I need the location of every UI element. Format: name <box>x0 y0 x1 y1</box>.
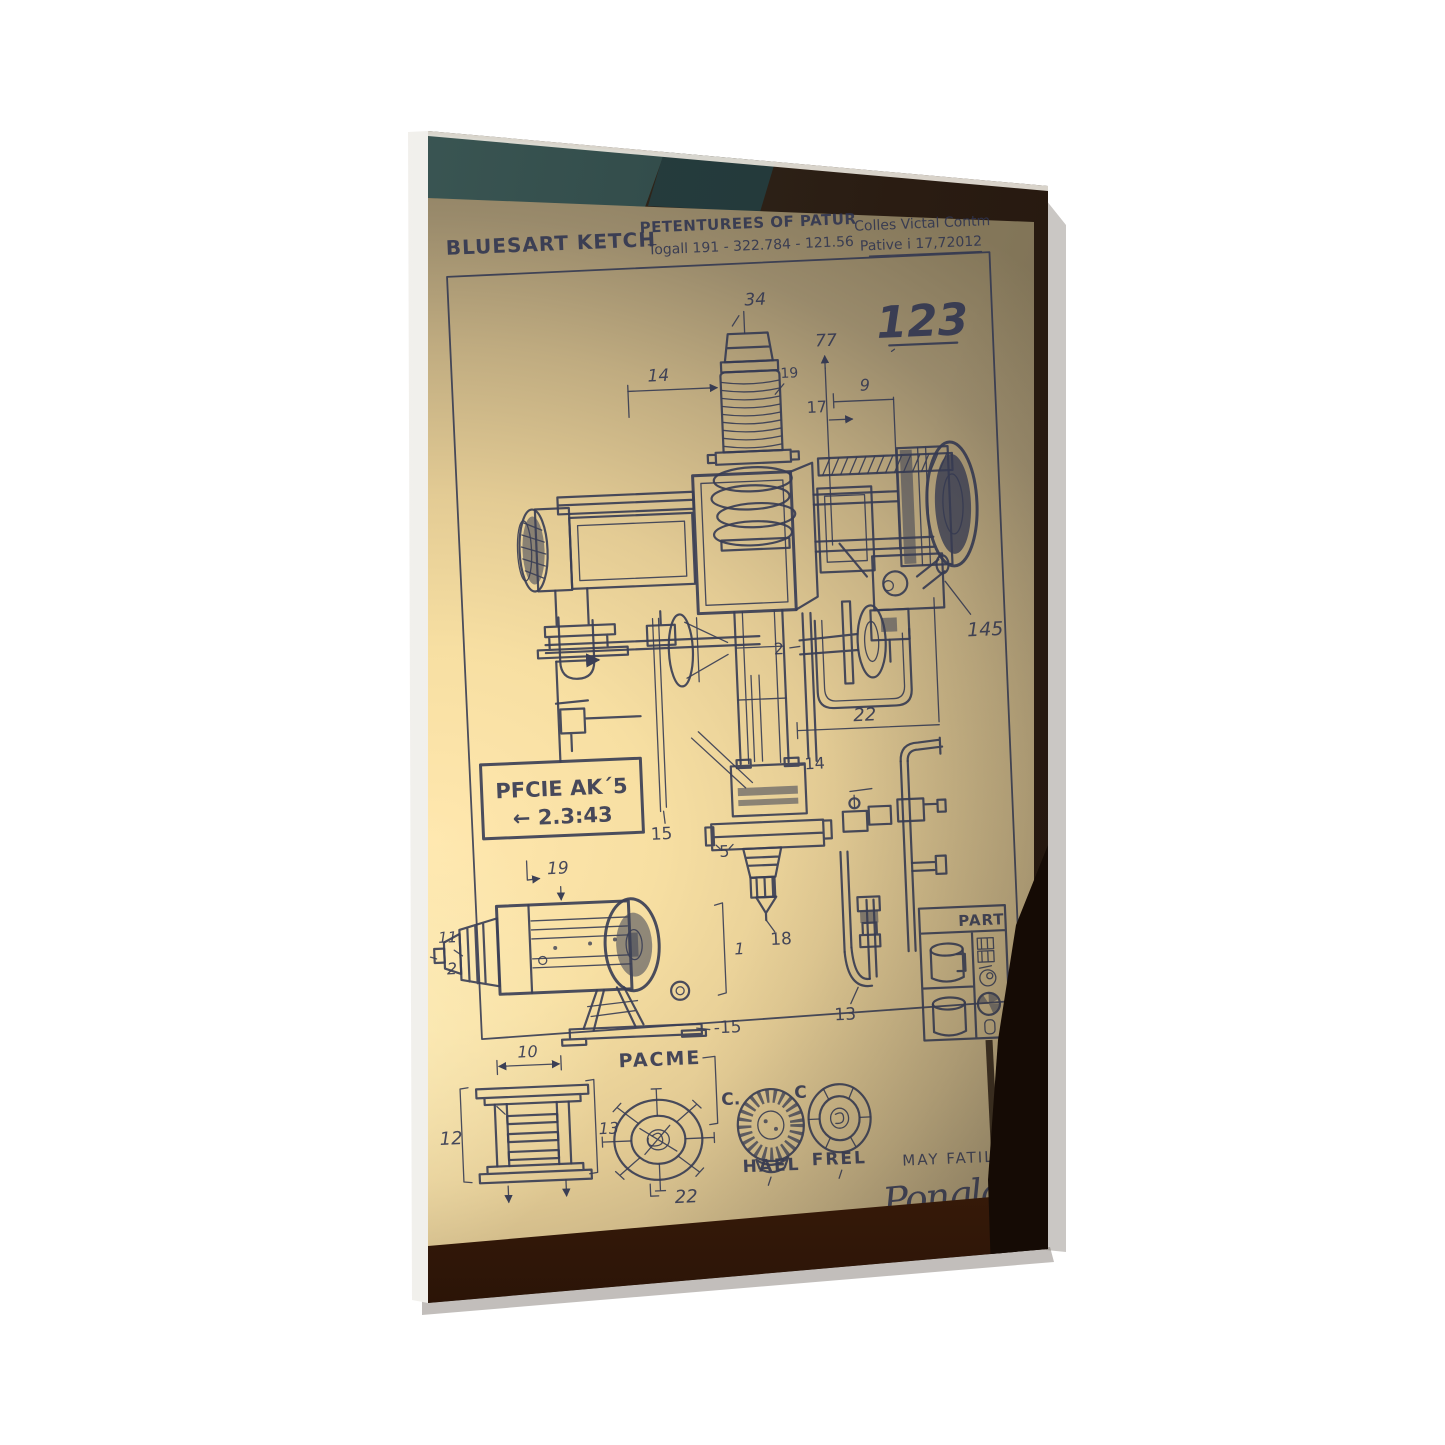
product-mockup-scene: BLUESART KETCH PETENTUREES OF PATUR Toga… <box>0 0 1445 1445</box>
canvas-print-photo: BLUESART KETCH PETENTUREES OF PATUR Toga… <box>0 0 1445 1445</box>
